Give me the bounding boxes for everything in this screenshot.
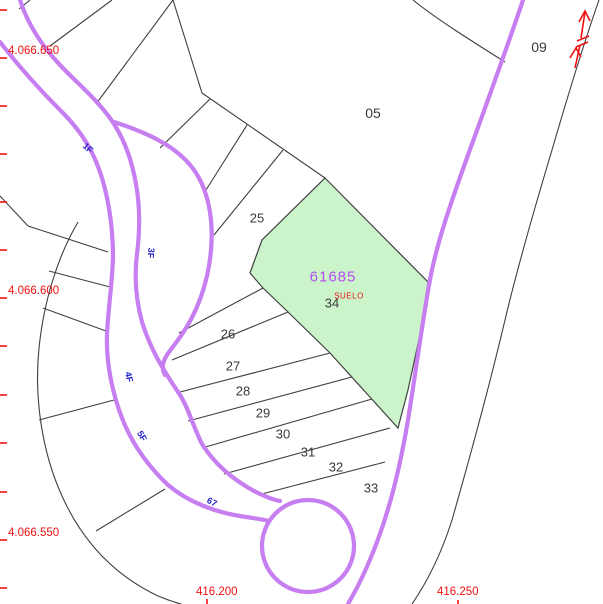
grid-ticks-left bbox=[0, 10, 7, 588]
parcel-number-32: 32 bbox=[329, 460, 343, 475]
map-canvas bbox=[0, 0, 603, 604]
grid-y-label-4066600: 4.066.600 bbox=[8, 285, 59, 297]
parcel-number-27: 27 bbox=[226, 359, 240, 374]
parcel-number-29: 29 bbox=[256, 406, 270, 421]
parcel-number-09: 09 bbox=[531, 39, 547, 55]
parcel-boundary bbox=[173, 0, 325, 178]
grid-x-label-416250: 416.250 bbox=[437, 586, 479, 598]
parcel-boundary bbox=[96, 0, 173, 104]
parcel-number-05: 05 bbox=[365, 105, 381, 121]
highlight-parcel-id: 61685 bbox=[310, 269, 357, 286]
parcel-number-26: 26 bbox=[221, 327, 235, 342]
parcel-boundary bbox=[160, 99, 210, 148]
parcel-boundary-east bbox=[412, 0, 599, 604]
street-label-3f: 3F bbox=[146, 247, 157, 258]
cadastral-map-viewport[interactable]: 05 09 25 26 27 28 29 30 31 32 33 61685 S… bbox=[0, 0, 603, 604]
grid-ticks-bottom bbox=[207, 599, 458, 604]
street-label-4f: 4F bbox=[123, 371, 135, 383]
parcel-number-31: 31 bbox=[301, 445, 315, 460]
culdesac-circle bbox=[262, 500, 354, 592]
grid-y-label-4066550: 4.066.550 bbox=[8, 527, 59, 539]
parcel-boundary bbox=[39, 400, 114, 420]
parcel-boundary bbox=[0, 196, 28, 226]
parcel-number-28: 28 bbox=[236, 384, 250, 399]
parcel-boundary bbox=[28, 226, 108, 252]
parcel-number-33: 33 bbox=[364, 481, 378, 496]
parcel-number-30: 30 bbox=[276, 427, 290, 442]
parcel-number-25: 25 bbox=[250, 211, 264, 226]
grid-x-label-416200: 416.200 bbox=[196, 586, 238, 598]
grid-y-label-4066650: 4.066.650 bbox=[8, 45, 59, 57]
parcel-boundary bbox=[96, 489, 165, 531]
parcel-boundary bbox=[214, 150, 283, 235]
parcel-boundary bbox=[206, 125, 247, 190]
parcel-boundary bbox=[50, 0, 112, 46]
parcel-boundary bbox=[180, 353, 330, 392]
highlight-parcel-number: 34 bbox=[325, 296, 339, 311]
power-line-symbol bbox=[570, 11, 590, 68]
parcel-boundary bbox=[413, 0, 505, 62]
parcel-boundary bbox=[43, 308, 106, 331]
